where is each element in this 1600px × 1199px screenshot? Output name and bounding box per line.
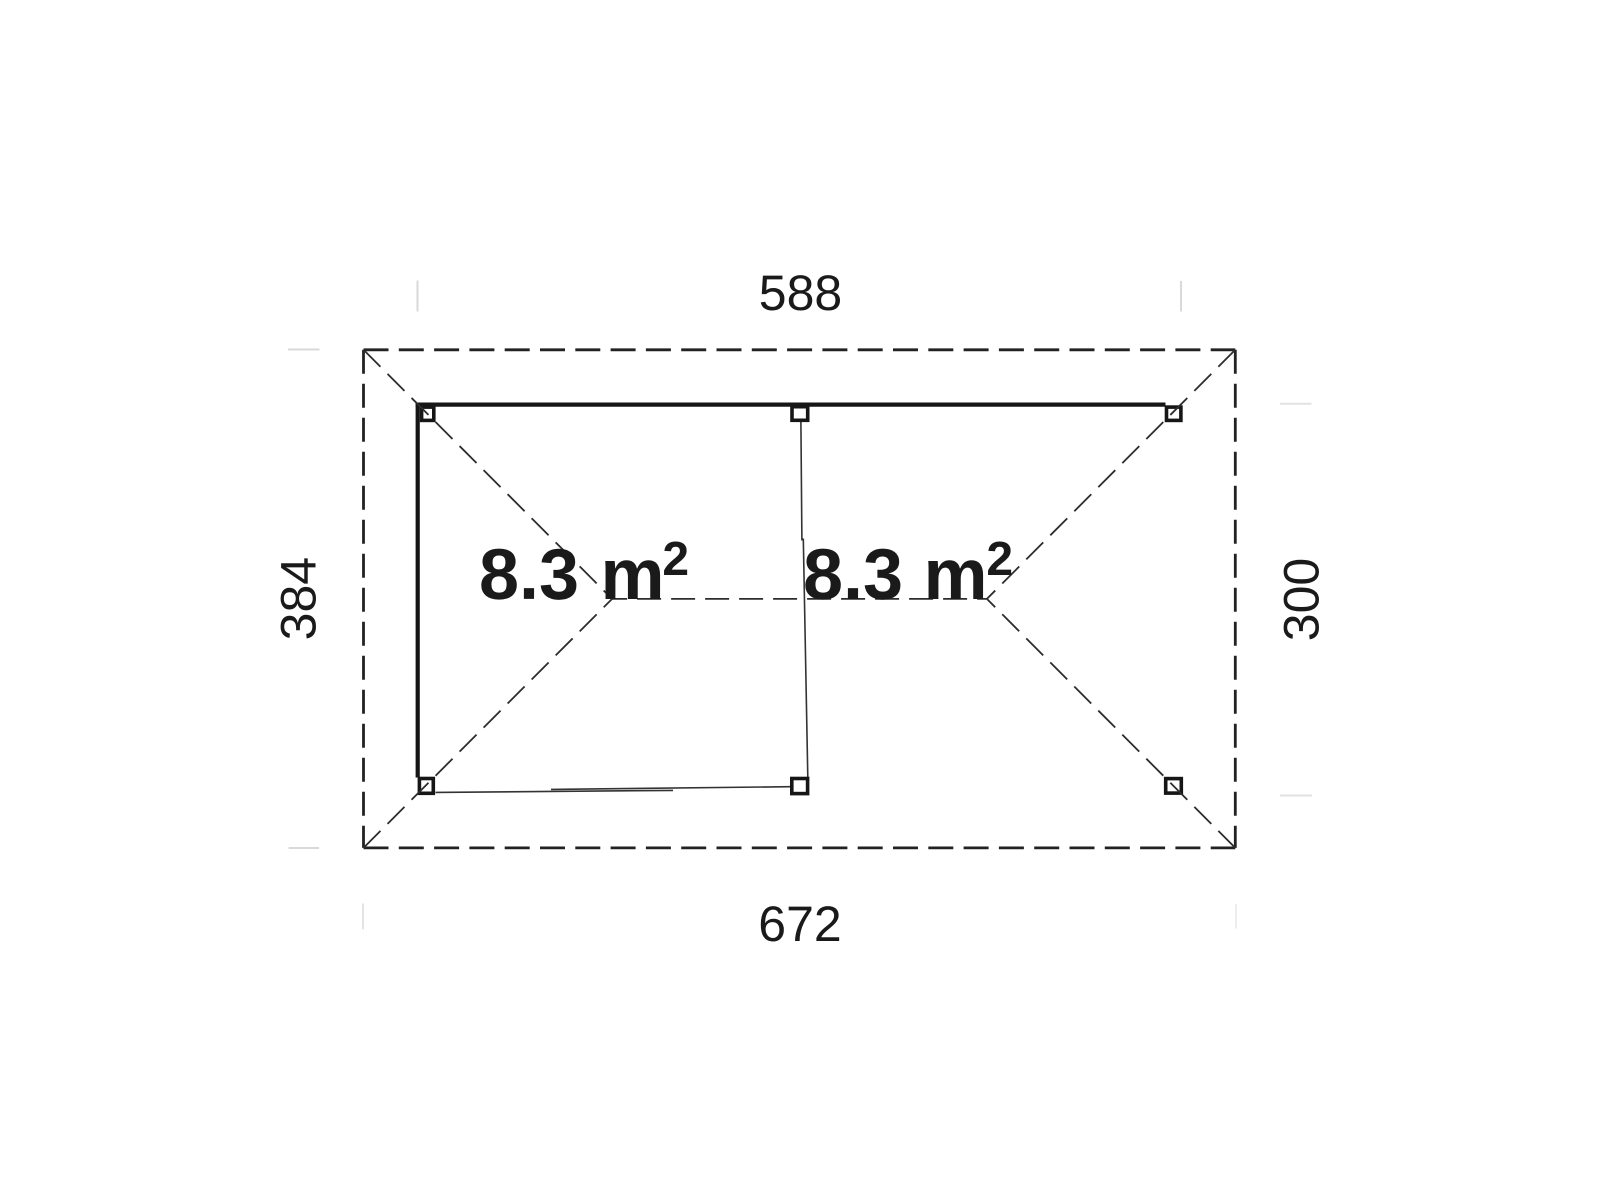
- svg-text:m: m: [600, 535, 664, 615]
- svg-text:2: 2: [986, 533, 1013, 586]
- svg-text:384: 384: [271, 557, 327, 640]
- svg-text:2: 2: [662, 533, 689, 586]
- svg-text:8.3: 8.3: [803, 535, 903, 615]
- svg-text:672: 672: [758, 896, 841, 952]
- svg-text:588: 588: [759, 265, 842, 321]
- svg-text:8.3: 8.3: [479, 535, 579, 615]
- svg-text:m: m: [923, 535, 987, 615]
- svg-text:300: 300: [1274, 558, 1330, 641]
